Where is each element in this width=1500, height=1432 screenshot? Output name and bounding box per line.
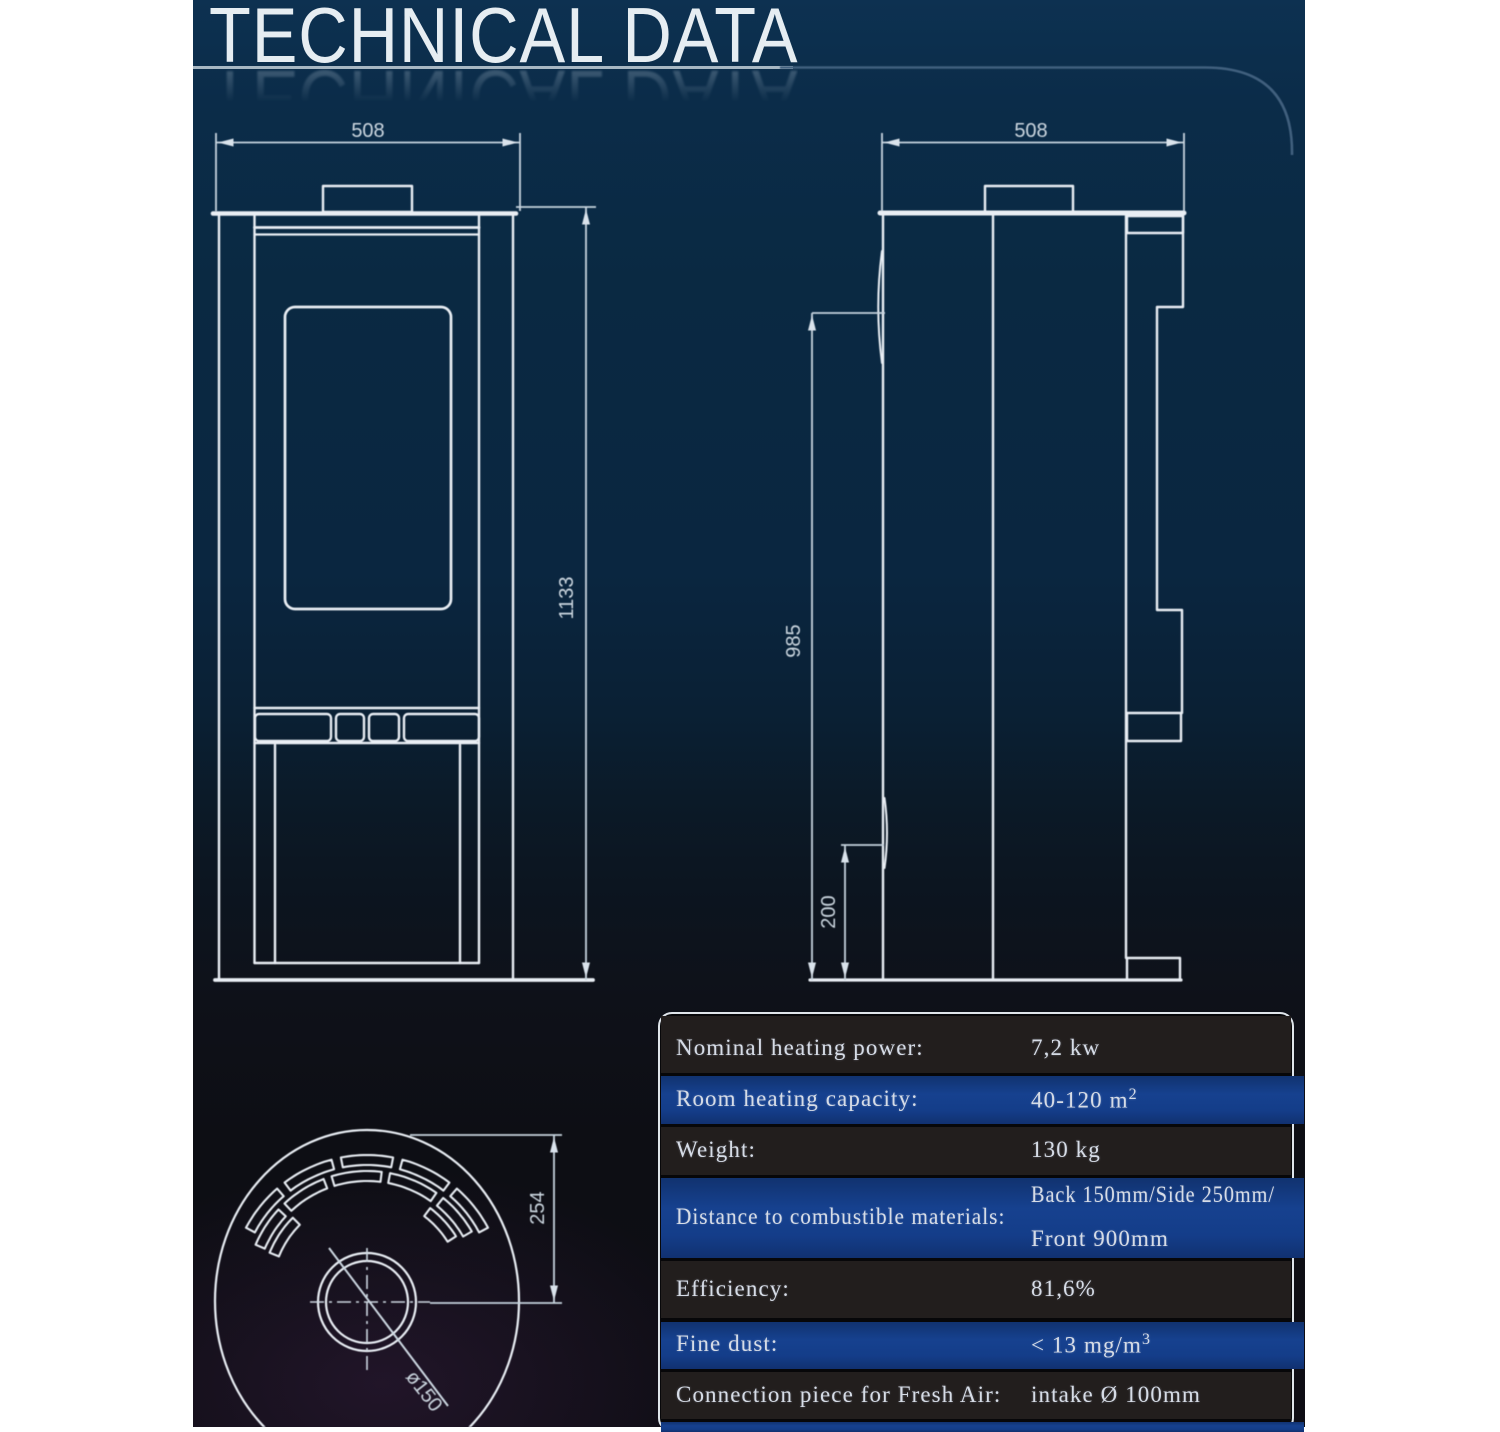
svg-text:ø150: ø150 — [401, 1367, 446, 1416]
svg-text:508: 508 — [1014, 120, 1047, 142]
svg-text:1133: 1133 — [556, 576, 578, 619]
svg-text:254: 254 — [527, 1191, 549, 1224]
svg-text:508: 508 — [351, 120, 384, 142]
svg-text:200: 200 — [818, 895, 840, 928]
svg-text:985: 985 — [783, 624, 805, 657]
